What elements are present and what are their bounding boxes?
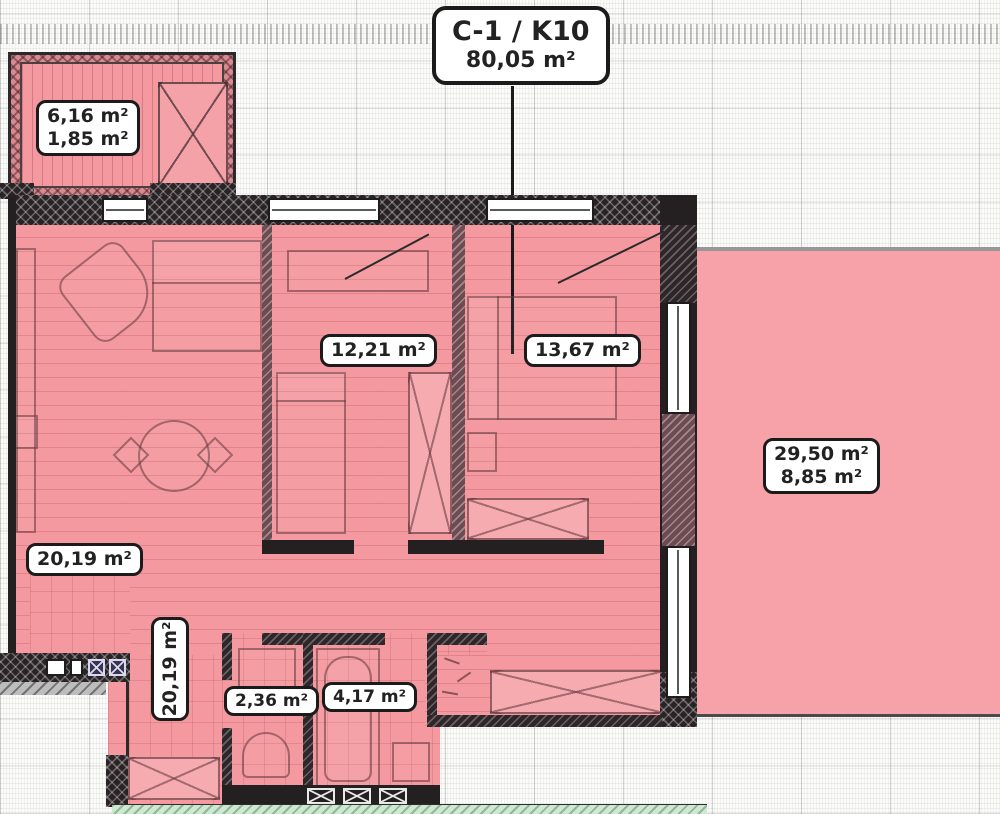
- bathroom-area: 4,17 m²: [333, 687, 406, 707]
- wall-left: [8, 195, 16, 660]
- bedroom1-area: 12,21 m²: [331, 339, 426, 362]
- bottom-edge-strip: [112, 804, 707, 814]
- sink-bathroom: [392, 742, 430, 782]
- vent-shaft-icon: [307, 788, 335, 804]
- sofa-cushion-line: [152, 240, 262, 284]
- vent-shaft-icon: [379, 788, 407, 804]
- nightstand-bedroom2: [467, 432, 497, 472]
- bed2-pillow-line: [467, 296, 499, 420]
- wall-wc-bath: [303, 633, 313, 807]
- corridor-wardrobe: [490, 670, 662, 714]
- plan-title: C-1 / K10 80,05 m²: [432, 6, 610, 85]
- label-bedroom-2: 13,67 m²: [524, 334, 641, 367]
- kitchen-counter: [16, 248, 36, 533]
- wc-area: 2,36 m²: [235, 691, 308, 711]
- kitchen-vent-window-2: [70, 659, 83, 676]
- wall-living-bedroom1: [262, 225, 272, 543]
- sink-wc: [238, 648, 296, 688]
- kitchen-shaft-icon: [88, 659, 105, 676]
- wall-right-hatch-top: [660, 225, 697, 303]
- stove: [14, 415, 38, 449]
- label-balcony: 6,16 m² 1,85 m²: [36, 100, 140, 156]
- wall-bedroom2-bottom: [408, 540, 604, 554]
- dresser-bedroom2: [467, 498, 589, 540]
- hall-left-edge: [126, 682, 129, 757]
- wall-bedroom1-bottom: [262, 540, 354, 554]
- balcony-area-total: 6,16 m²: [47, 105, 129, 128]
- floor-plan: C-1 / K10 80,05 m² 6,16 m² 1,85 m² 12,21…: [0, 0, 1000, 814]
- wall-corridor-bottom: [427, 715, 662, 727]
- window-terrace-2: [666, 546, 691, 698]
- wall-bath-right: [427, 633, 437, 727]
- kitchen-shaft-icon: [109, 659, 126, 676]
- label-kitchen-living: 20,19 m²: [26, 543, 143, 576]
- balcony-shaft: [158, 82, 228, 186]
- toilet: [242, 732, 290, 778]
- label-terrace: 29,50 m² 8,85 m²: [763, 438, 880, 494]
- wall-entry-left: [106, 755, 128, 807]
- label-bedroom-1: 12,21 m²: [320, 334, 437, 367]
- unit-code: C-1 / K10: [452, 16, 590, 48]
- terrace-area-reduced: 8,85 m²: [781, 466, 863, 489]
- window-bedroom-1: [268, 198, 380, 222]
- cabinet-bedroom1: [408, 372, 452, 534]
- balcony-area-reduced: 1,85 m²: [47, 128, 129, 151]
- wall-wc-left-upper: [222, 633, 232, 680]
- wall-bath-top: [303, 633, 385, 645]
- unit-total-area: 80,05 m²: [466, 48, 576, 74]
- wall-right-pier: [662, 414, 695, 546]
- entry-landing: [0, 682, 106, 695]
- label-bathroom: 4,17 m²: [322, 682, 417, 712]
- hall-closet: [128, 757, 220, 800]
- bed1-pillow-line: [276, 372, 346, 402]
- wall-bedroom1-bedroom2: [452, 225, 465, 543]
- hallway-area: 20,19 m²: [159, 622, 182, 717]
- label-hallway: 20,19 m²: [151, 617, 189, 721]
- vent-shaft-icon: [343, 788, 371, 804]
- window-terrace-1: [666, 302, 691, 414]
- window-bedroom-2: [486, 198, 594, 222]
- terrace-area-total: 29,50 m²: [774, 443, 869, 466]
- kitchen-living-area: 20,19 m²: [37, 548, 132, 571]
- kitchen-vent-window-1: [46, 659, 66, 676]
- balcony-door: [102, 198, 148, 222]
- label-wc: 2,36 m²: [224, 686, 319, 716]
- bedroom2-area: 13,67 m²: [535, 339, 630, 362]
- bathtub-inner: [324, 656, 372, 782]
